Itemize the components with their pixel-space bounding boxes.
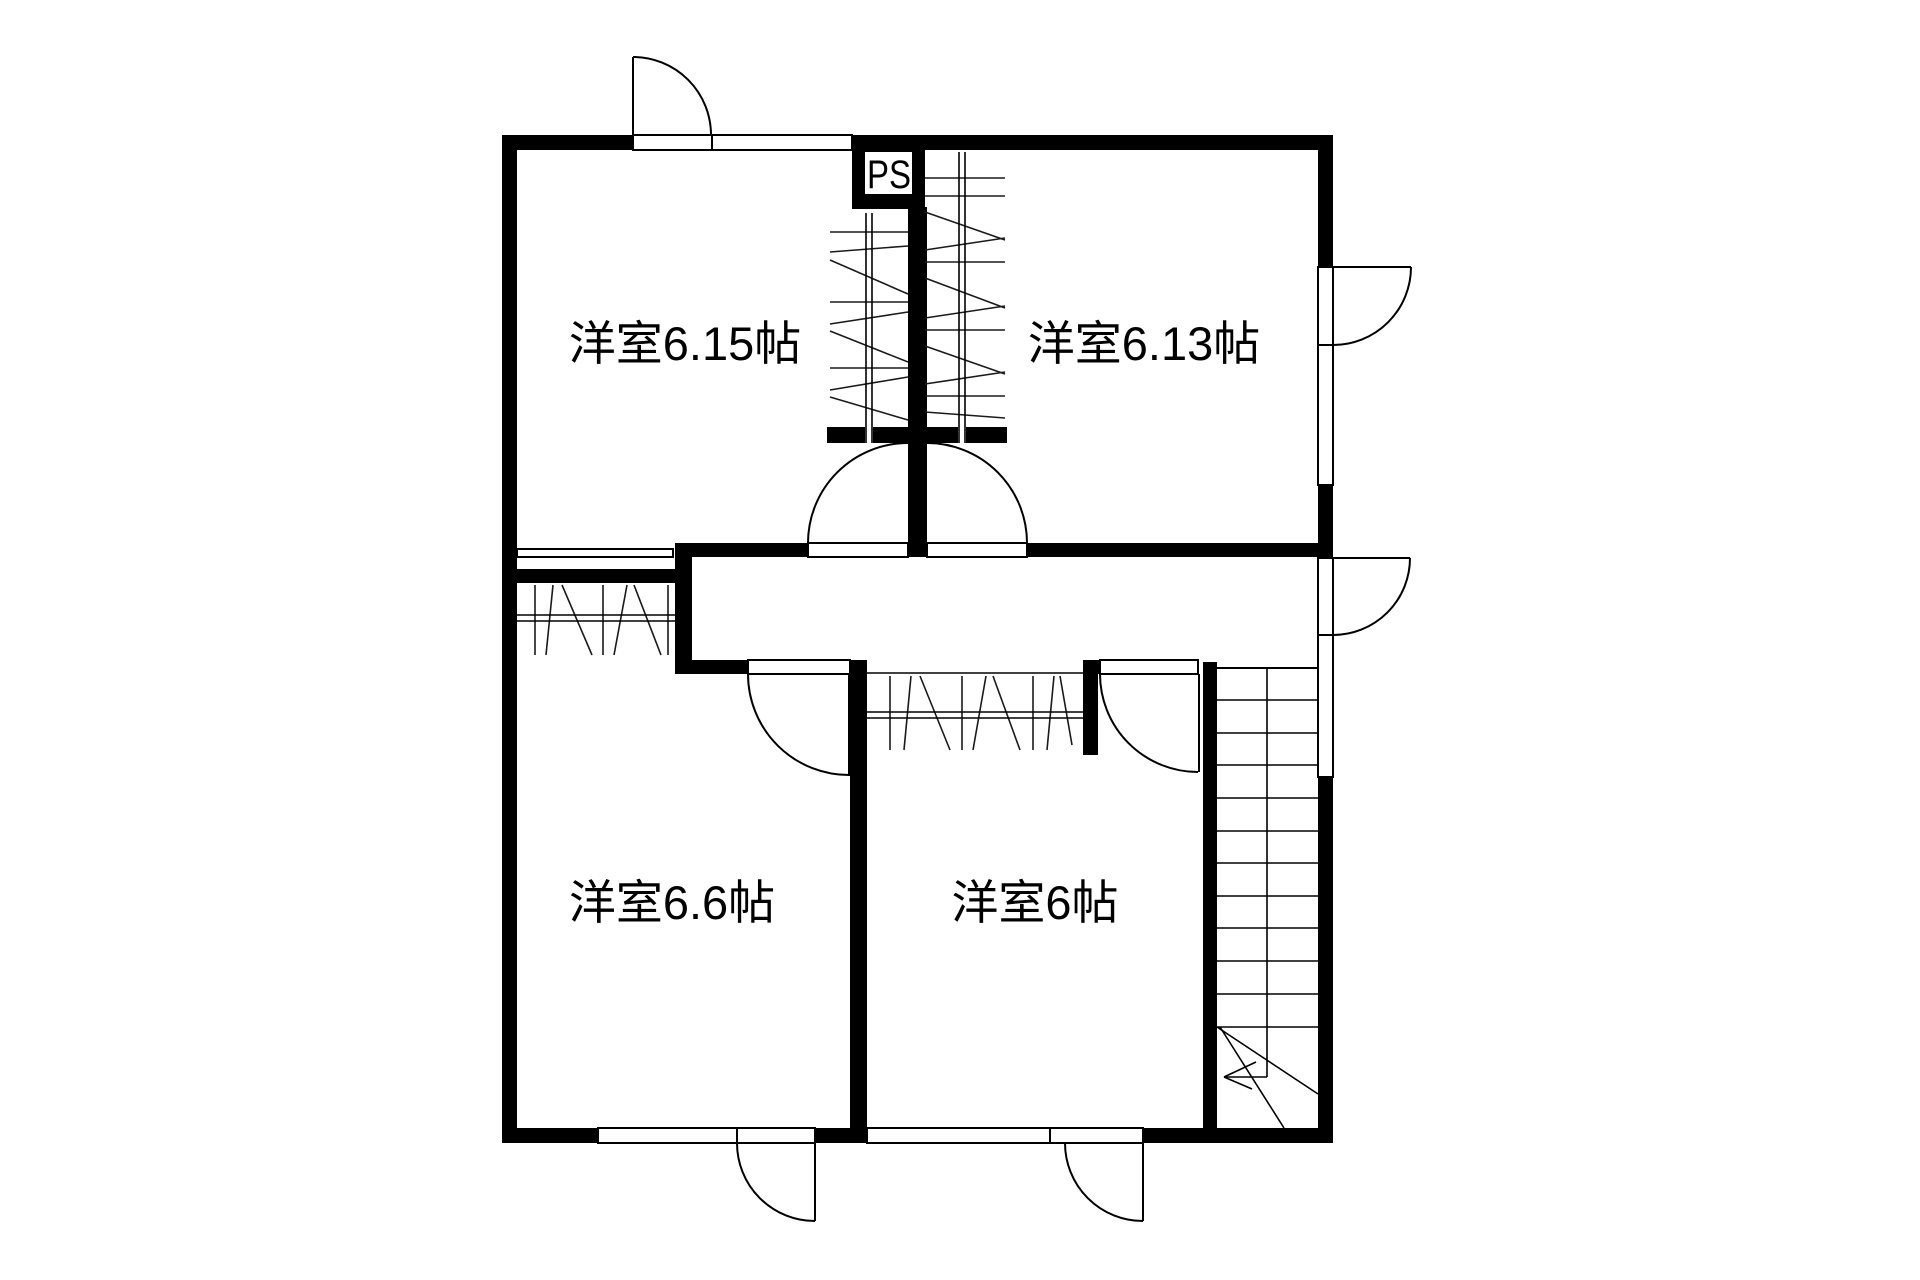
bedroom-2-door-arc (927, 443, 1027, 543)
right-upper-casement-arc (1333, 267, 1411, 345)
wall-stairwell-left (1203, 662, 1217, 1128)
wall-bottom-right (1143, 1128, 1333, 1143)
wall-hall-bottom-a (692, 660, 748, 674)
ps-label: PS (867, 153, 911, 197)
closet-bedroom-4 (867, 673, 1083, 750)
room-label-bedroom-2: 洋室6.13帖 (1028, 317, 1260, 370)
bedroom-4-bottom-window (867, 1128, 1143, 1143)
wall-right-lower (1318, 777, 1333, 1128)
top-door-arc (633, 57, 711, 135)
bedroom-4-bottom-door-arc (1065, 1143, 1143, 1221)
bedroom-3-bottom-door-arc (737, 1143, 815, 1221)
wall-hall-top-b (1027, 543, 1318, 557)
closet-1-hangers (830, 232, 908, 420)
wall-bottom-left (502, 1128, 598, 1143)
bedroom-4-door-arc (1100, 674, 1198, 772)
room-label-bedroom-4: 洋室6帖 (951, 876, 1118, 929)
closet-3-hangers (535, 585, 668, 655)
wall-top-left (502, 135, 633, 150)
floor-plan-page: PS (0, 0, 1920, 1280)
bedroom-3-door-arc (748, 674, 850, 775)
wall-room1-bottom (517, 569, 675, 583)
wall-right-middle (1318, 485, 1333, 558)
closet-bedroom-2 (925, 152, 1005, 443)
bedroom-3-bottom-window (598, 1128, 815, 1143)
door-swings (633, 57, 1411, 1221)
wall-hall-top-a (692, 543, 808, 557)
ps-box: PS (852, 137, 925, 209)
top-entry-opening (633, 135, 852, 150)
room-label-bedroom-3: 洋室6.6帖 (569, 876, 775, 929)
closet-bedroom-1 (830, 213, 908, 443)
room-label-bedroom-1: 洋室6.15帖 (569, 317, 801, 370)
wall-left (502, 135, 517, 1143)
right-lower-casement-arc (1333, 558, 1410, 635)
wall-hall-left-cap (675, 543, 692, 674)
wall-center-stub (908, 207, 927, 557)
bedroom-1-door-arc (808, 443, 908, 543)
right-window-lower (1318, 558, 1333, 777)
wall-closet-bar (827, 427, 1007, 443)
bedroom-3-door-opening (748, 660, 850, 674)
bedroom-1-door-opening (808, 543, 908, 557)
bedroom-1-closet-window (517, 549, 673, 557)
wall-right-upper (1318, 150, 1333, 267)
wall-closet4-right (1083, 662, 1098, 755)
wall-room-divider (850, 660, 867, 1143)
bedroom-4-door-opening (1100, 660, 1198, 674)
stairs (1217, 668, 1318, 1128)
floor-plan-svg: PS (0, 0, 1920, 1280)
bedroom-2-door-opening (927, 543, 1027, 557)
closet-4-hangers (890, 676, 1072, 750)
closet-bedroom-3 (517, 585, 675, 655)
right-window-upper (1318, 267, 1333, 485)
